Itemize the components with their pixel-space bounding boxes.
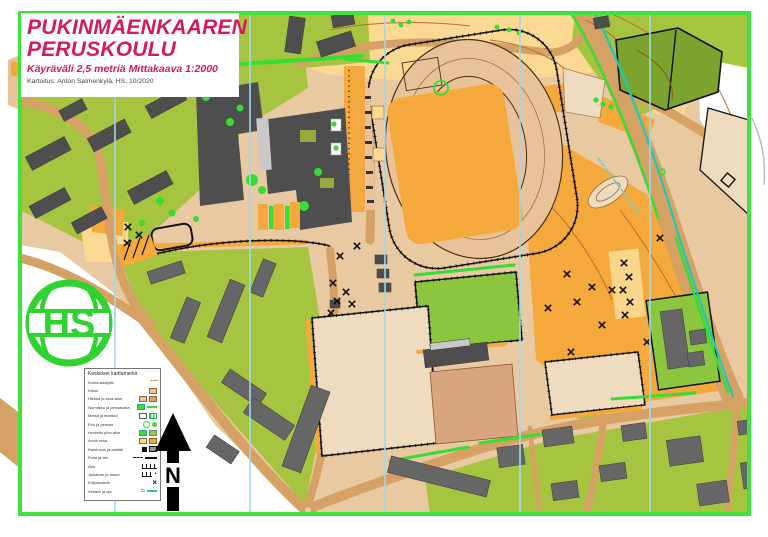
legend-item: Katos — [88, 386, 157, 394]
legend-item: Hoidettu piha-alue — [88, 428, 157, 436]
legend-item-label: Aita — [88, 464, 95, 469]
legend-item: Avoin maa — [88, 437, 157, 445]
legend-item: Puu ja pensas — [88, 420, 157, 428]
legend-item-label: Hoidettu piha-alue — [88, 430, 120, 435]
map-subtitle: Käyräväli 2,5 metriä Mittakaava 1:2000 — [27, 63, 239, 75]
legend-item-label: Rakennus ja asfaltti — [88, 447, 123, 452]
legend-items: Korkeuskäyrät~ ~KatosHiekka ja sora-alue… — [88, 378, 157, 495]
legend-item: Jyrkänne ja muuri· — [88, 470, 157, 478]
legend-item: Erityiskohde× — [88, 479, 157, 487]
legend-item: Hiekka ja sora-alue — [88, 395, 157, 403]
north-arrow: N — [152, 413, 196, 513]
legend-item: Polut ja tiet — [88, 454, 157, 462]
map-title-line1: PUKINMÄENKAAREN — [27, 17, 239, 39]
legend-item: Nurmikko ja pensasaita — [88, 403, 157, 411]
legend-item-label: Polut ja tiet — [88, 455, 108, 460]
title-block: PUKINMÄENKAAREN PERUSKOULU Käyräväli 2,5… — [21, 13, 239, 97]
legend-item-label: Metsä ja tiheikkö — [88, 413, 118, 418]
legend-item: Korkeuskäyrät~ ~ — [88, 378, 157, 386]
legend-item: Rakennus ja asfaltti — [88, 445, 157, 453]
legend-item-symbol: ~ ~ — [150, 380, 157, 384]
map-title-line2: PERUSKOULU — [27, 39, 239, 61]
hs-logo: HS — [24, 276, 114, 370]
legend-item-label: Nurmikko ja pensasaita — [88, 405, 130, 410]
legend-item: Vesistö ja oja≈ — [88, 487, 157, 495]
legend-item-label: Korkeuskäyrät — [88, 380, 114, 385]
map-credit: Kartoitus: Anton Salmenkylä, HS, 10/2020 — [27, 78, 239, 85]
legend-item-label: Puu ja pensas — [88, 422, 113, 427]
legend-item-label: Avoin maa — [88, 438, 107, 443]
north-label: N — [165, 463, 181, 488]
legend-title: Keskeiset karttamerkit — [88, 371, 157, 377]
legend-item: Metsä ja tiheikkö — [88, 412, 157, 420]
legend-item-label: Hiekka ja sora-alue — [88, 396, 122, 401]
legend-item-label: Vesistö ja oja — [88, 489, 112, 494]
legend-item-symbol — [149, 388, 157, 394]
legend-item-label: Katos — [88, 388, 98, 393]
hs-logo-text: HS — [43, 303, 96, 345]
legend-item-label: Jyrkänne ja muuri — [88, 472, 120, 477]
legend-box: Keskeiset karttamerkit Korkeuskäyrät~ ~K… — [84, 368, 161, 501]
legend-item-symbol — [139, 396, 157, 402]
legend-item: Aita — [88, 462, 157, 470]
north-arrow-head — [155, 413, 191, 451]
legend-item-symbol — [137, 404, 157, 410]
map-poster: PUKINMÄENKAAREN PERUSKOULU Käyräväli 2,5… — [0, 0, 768, 537]
legend-item-label: Erityiskohde — [88, 480, 110, 485]
